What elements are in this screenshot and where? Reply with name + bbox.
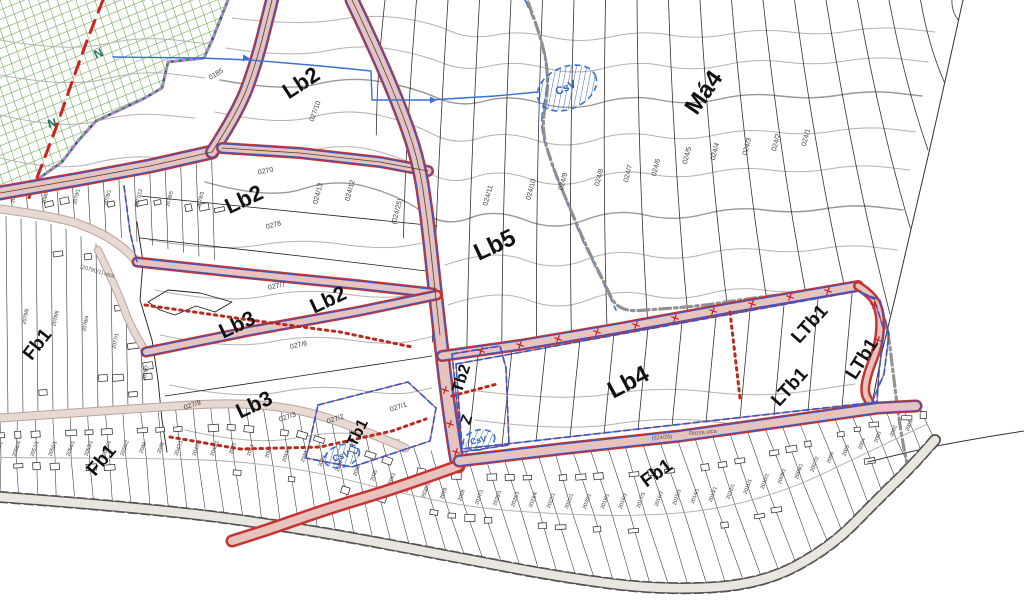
building-footprint [505,474,514,480]
building-footprint [559,475,567,481]
building-footprint [902,416,912,420]
building-footprint [50,463,60,470]
building-footprint [244,425,254,432]
building-footprint [0,433,5,439]
building-footprint [523,475,532,480]
building-footprint [33,462,41,469]
building-footprint [804,441,811,447]
building-footprint [15,431,22,438]
building-footprint [484,517,492,523]
building-footprint [920,412,926,419]
building-footprint [721,522,729,529]
building-footprint [53,251,63,257]
building-footprint [593,526,601,532]
building-footprint [156,427,165,432]
building-footprint [14,463,23,468]
building-footprint [101,428,112,435]
building-footprint [575,474,586,481]
building-footprint [129,392,138,398]
building-footprint [771,507,782,513]
building-footprint [448,513,456,518]
building-footprint [39,390,47,396]
building-footprint [786,445,798,453]
zoning-map-canvas: 2081/12080/12079/12078/12077/122078/5207… [0,0,1024,607]
building-footprint [185,204,193,212]
building-footprint [60,197,70,205]
building-footprint [227,424,235,430]
building-footprint [735,458,745,464]
building-footprint [430,509,439,515]
building-footprint [837,431,844,437]
building-footprint [112,374,123,381]
building-footprint [487,474,497,481]
building-footprint [66,430,77,436]
building-footprint [555,525,566,530]
building-footprint [854,427,861,432]
building-footprint [208,424,219,432]
building-footprint [85,430,93,435]
building-footprint [628,528,639,533]
building-footprint [233,470,241,476]
building-footprint [288,477,295,482]
map-viewport: 2081/12080/12079/12078/12077/122078/5207… [0,0,1024,607]
building-footprint [137,428,148,433]
building-footprint [701,464,710,471]
building-footprint [98,374,107,381]
building-footprint [465,515,475,522]
building-footprint [538,523,547,529]
building-footprint [174,427,183,432]
building-footprint [594,473,604,480]
building-footprint [280,430,288,436]
building-footprint [869,422,879,427]
building-footprint [769,450,779,456]
building-footprint [718,461,727,467]
building-footprint [31,431,40,438]
building-footprint [154,200,161,206]
building-footprint [84,253,92,260]
